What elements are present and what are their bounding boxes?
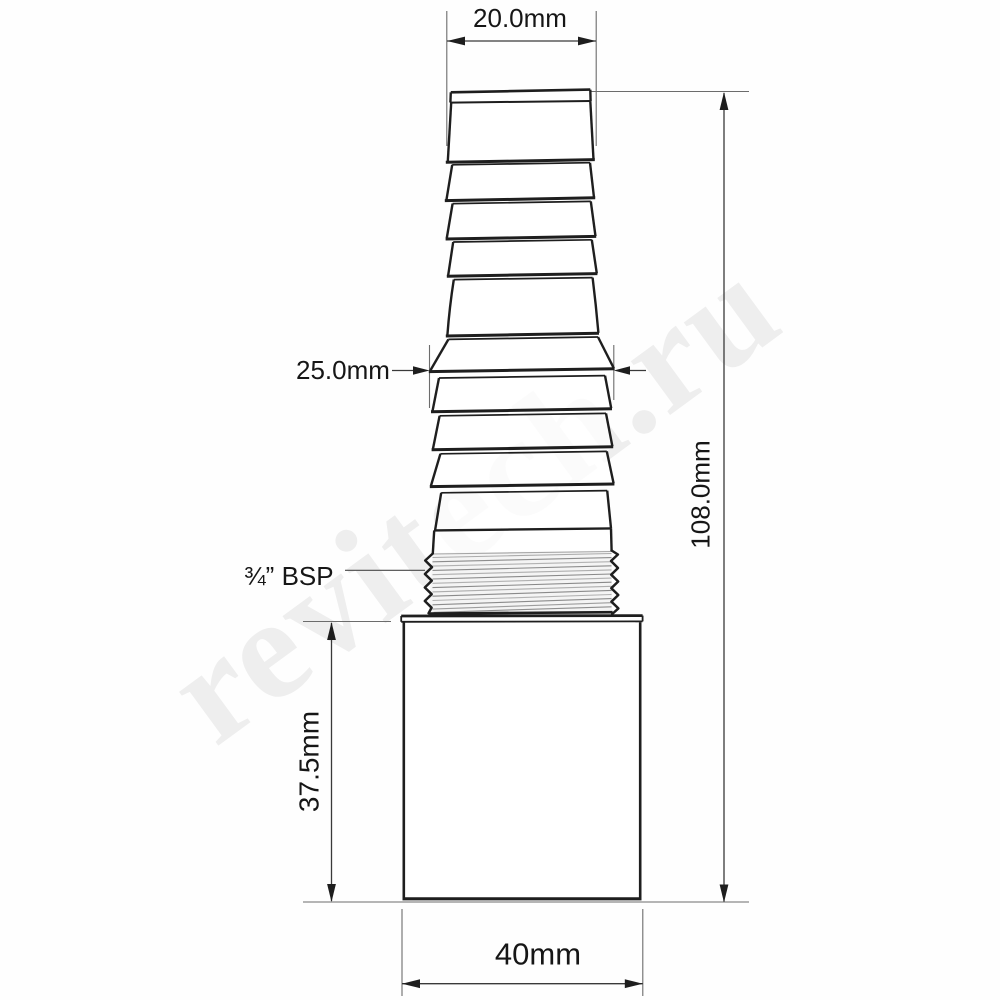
svg-text:20.0mm: 20.0mm — [473, 3, 567, 33]
svg-text:25.0mm: 25.0mm — [296, 355, 390, 385]
svg-text:40mm: 40mm — [495, 937, 581, 972]
svg-text:108.0mm: 108.0mm — [686, 440, 716, 548]
svg-text:¾” BSP: ¾” BSP — [244, 561, 334, 591]
svg-text:37.5mm: 37.5mm — [294, 711, 325, 812]
